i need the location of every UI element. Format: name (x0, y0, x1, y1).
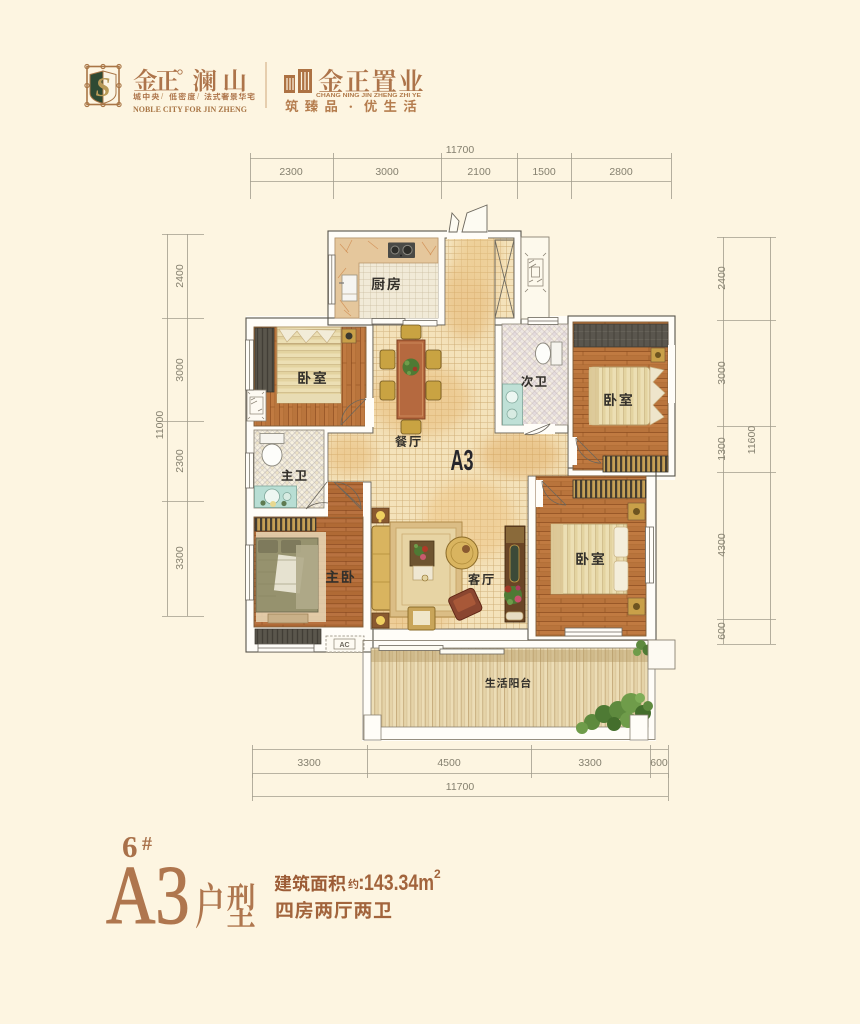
svg-text:2: 2 (434, 867, 441, 881)
svg-text:CHANG NING JIN ZHENG ZHI YE: CHANG NING JIN ZHENG ZHI YE (316, 93, 421, 99)
svg-text:600: 600 (716, 622, 728, 640)
svg-text:A3: A3 (451, 445, 474, 477)
svg-text:600: 600 (650, 757, 668, 769)
svg-text:143.34m: 143.34m (364, 870, 434, 895)
svg-text:2800: 2800 (609, 166, 633, 178)
svg-text:2100: 2100 (467, 166, 491, 178)
svg-text:11700: 11700 (446, 144, 475, 156)
svg-text:AC: AC (339, 642, 349, 649)
svg-text:A3: A3 (106, 848, 190, 941)
svg-text:2300: 2300 (174, 449, 186, 473)
svg-text:4500: 4500 (437, 757, 461, 769)
svg-text:3300: 3300 (578, 757, 602, 769)
svg-text:11700: 11700 (446, 781, 475, 793)
svg-text:3000: 3000 (375, 166, 399, 178)
svg-text:2400: 2400 (716, 266, 728, 290)
svg-text:2300: 2300 (279, 166, 303, 178)
svg-text:2400: 2400 (174, 264, 186, 288)
svg-text:11000: 11000 (154, 411, 166, 440)
svg-text:S: S (95, 72, 110, 102)
svg-text:11600: 11600 (746, 426, 758, 455)
svg-text:NOBLE CITY FOR JIN ZHENG: NOBLE CITY FOR JIN ZHENG (133, 104, 247, 114)
svg-text:4300: 4300 (716, 533, 728, 557)
svg-text:3300: 3300 (174, 546, 186, 570)
svg-text:1500: 1500 (532, 166, 556, 178)
svg-text:3300: 3300 (297, 757, 321, 769)
svg-text:1300: 1300 (716, 437, 728, 461)
svg-text:3000: 3000 (174, 358, 186, 382)
svg-text:3000: 3000 (716, 361, 728, 385)
